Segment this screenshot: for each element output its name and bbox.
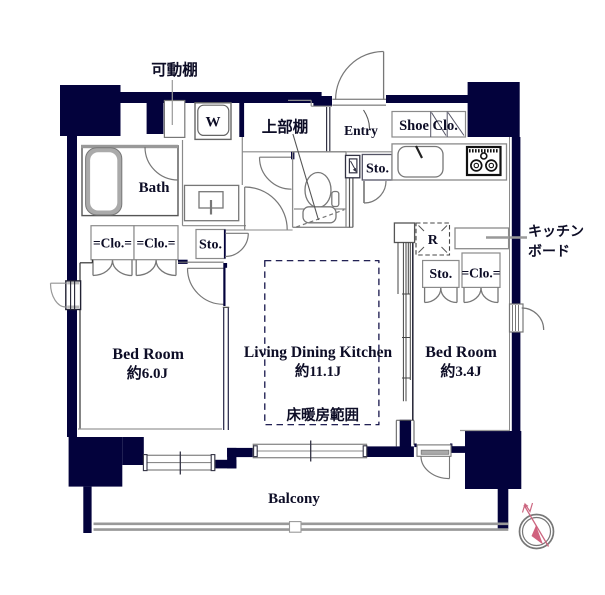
svg-text:Bed Room: Bed Room bbox=[425, 344, 497, 361]
svg-text:Sto.: Sto. bbox=[429, 267, 452, 282]
svg-text:Bed Room: Bed Room bbox=[112, 346, 184, 363]
svg-text:W: W bbox=[206, 115, 221, 131]
svg-text:Bath: Bath bbox=[139, 180, 171, 196]
svg-text:Sto.: Sto. bbox=[366, 162, 389, 177]
svg-text:Balcony: Balcony bbox=[268, 491, 320, 507]
svg-text:R: R bbox=[428, 233, 439, 248]
svg-text:Shoe Clo.: Shoe Clo. bbox=[399, 118, 458, 134]
svg-text:上部棚: 上部棚 bbox=[262, 117, 309, 136]
svg-text:=Clo.=: =Clo.= bbox=[461, 266, 500, 281]
svg-text:キッチン: キッチン bbox=[528, 224, 584, 240]
svg-text:約6.0J: 約6.0J bbox=[127, 364, 169, 382]
svg-text:約3.4J: 約3.4J bbox=[440, 362, 482, 380]
svg-text:約11.1J: 約11.1J bbox=[295, 362, 341, 380]
svg-text:=Clo.=: =Clo.= bbox=[93, 236, 132, 251]
svg-text:=Clo.=: =Clo.= bbox=[136, 236, 175, 251]
svg-text:ボード: ボード bbox=[528, 244, 570, 260]
svg-text:Entry: Entry bbox=[344, 123, 378, 138]
svg-text:Sto.: Sto. bbox=[199, 238, 222, 253]
svg-text:可動棚: 可動棚 bbox=[151, 60, 198, 79]
svg-text:Living Dining Kitchen: Living Dining Kitchen bbox=[244, 344, 393, 361]
svg-text:床暖房範囲: 床暖房範囲 bbox=[287, 406, 360, 424]
